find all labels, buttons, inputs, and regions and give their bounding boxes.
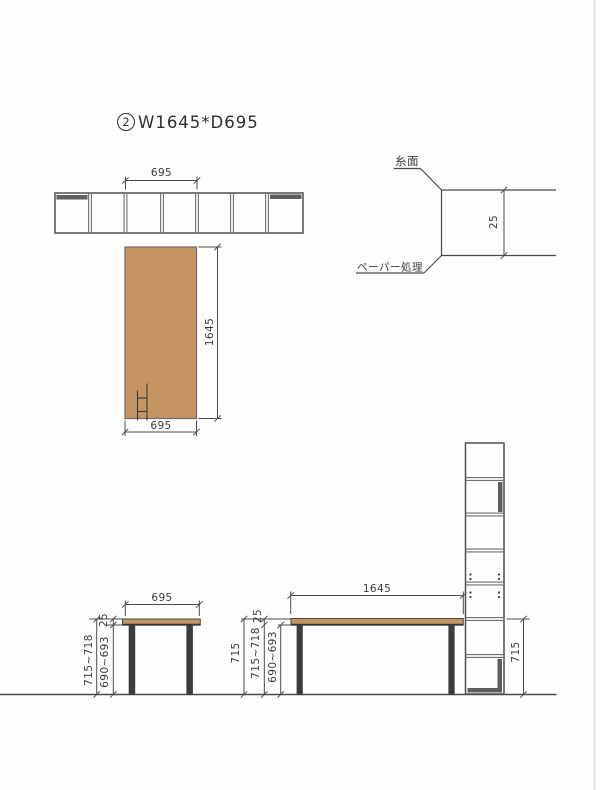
label-paper-finish: ペーパー処理 (357, 259, 423, 274)
dim-plan-695: 695 (150, 420, 171, 432)
dim-left-695: 695 (151, 592, 172, 604)
dim-right-25: 25 (252, 609, 264, 623)
fastener-dots (469, 573, 500, 598)
dim-detail-25: 25 (488, 215, 500, 229)
top-strip-view (55, 193, 303, 233)
dim-right-715-718: 715~718 (250, 627, 262, 679)
dim-stack-715: 715 (510, 641, 522, 662)
drawing-title-text: W1645*D695 (138, 113, 259, 132)
table-leg (186, 625, 193, 695)
circled-number-icon: 2 (117, 113, 135, 131)
processed-edge-strip (498, 659, 503, 692)
dim-left-690-693: 690~693 (99, 636, 111, 688)
left-elevation (123, 619, 201, 695)
dim-left-25: 25 (98, 613, 110, 627)
leader-line (424, 256, 442, 274)
drawing-sheet: 2 W1645*D695 695 1645 695 糸面 ペーパー処理 25 6… (0, 0, 600, 790)
edge-detail-dim-25 (501, 187, 507, 259)
processed-edge-strip (498, 482, 503, 512)
dim-right-715: 715 (230, 642, 242, 663)
dim-left-715-718: 715~718 (83, 634, 95, 686)
table-leg (297, 625, 303, 695)
label-itomen: 糸面 (395, 153, 419, 169)
dim-top-strip-695: 695 (151, 167, 172, 179)
table-leg (129, 625, 136, 695)
right-elevation (291, 619, 463, 695)
dim-right-690-693: 690~693 (267, 631, 279, 683)
leader-line (421, 169, 442, 191)
edge-detail-view (356, 169, 556, 274)
tabletop-surface (125, 247, 197, 419)
processed-edge-strip (57, 195, 88, 200)
tabletop-plan-view (125, 247, 197, 421)
dim-plan-1645: 1645 (204, 318, 216, 346)
processed-edge-strip (468, 688, 503, 693)
stack-side-view (466, 443, 505, 694)
drawing-title: 2 W1645*D695 (117, 110, 259, 134)
dim-right-1645: 1645 (363, 583, 391, 595)
processed-edge-strip (270, 195, 302, 200)
table-leg (448, 625, 454, 695)
